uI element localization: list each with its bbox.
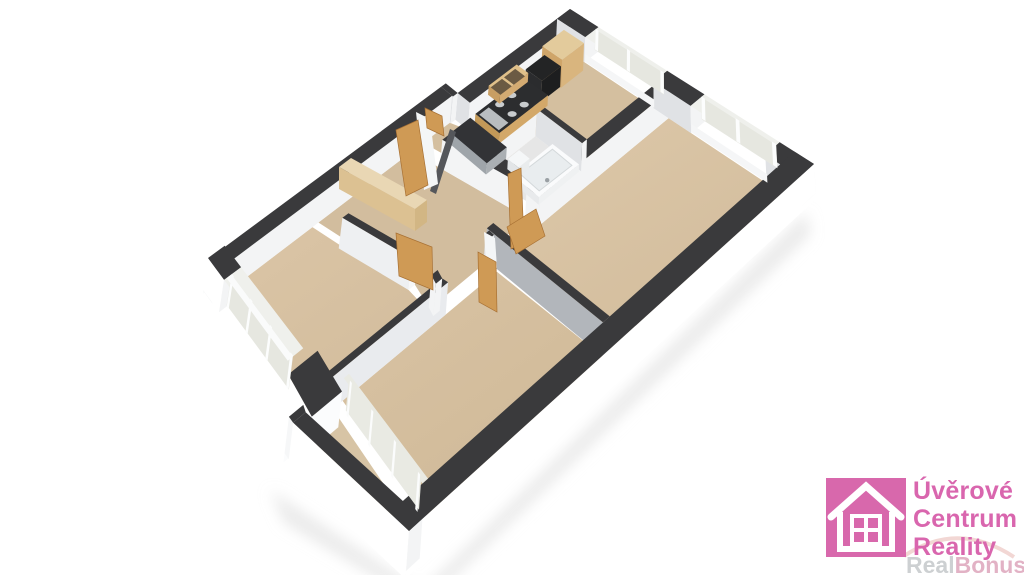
svg-text:Centrum: Centrum	[913, 505, 1017, 533]
svg-text:Úvěrové: Úvěrové	[913, 475, 1013, 505]
svg-text:RealBonus.cz: RealBonus.cz	[906, 552, 1024, 575]
